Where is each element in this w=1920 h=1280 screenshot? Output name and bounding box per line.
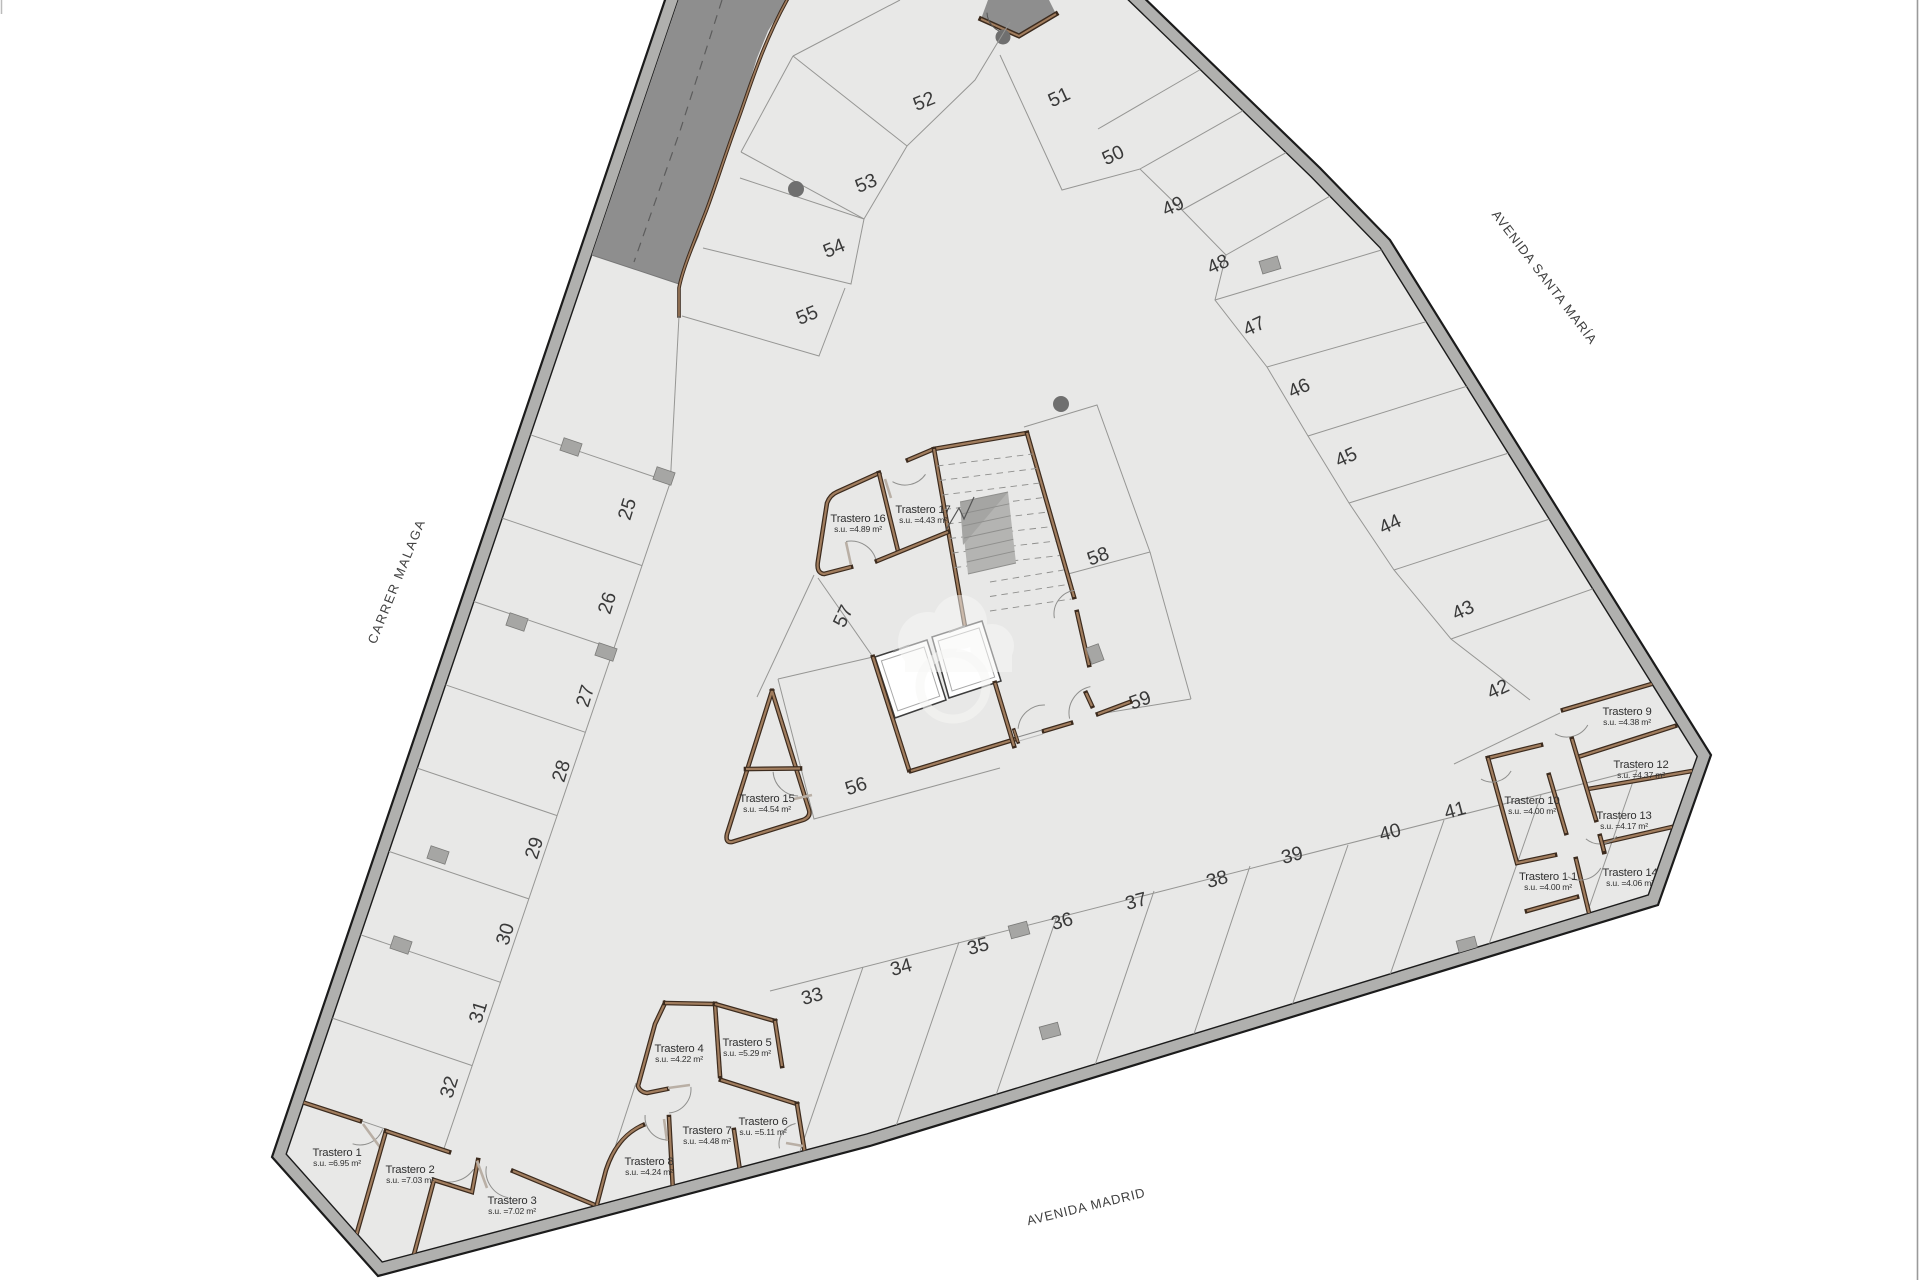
svg-text:s.u. =4.22 m²: s.u. =4.22 m² [655, 1054, 703, 1064]
svg-text:s.u. =4.89 m²: s.u. =4.89 m² [834, 524, 882, 534]
svg-text:s.u. =4.54 m²: s.u. =4.54 m² [743, 804, 791, 814]
svg-text:s.u. =4.43 m²: s.u. =4.43 m² [899, 515, 947, 525]
svg-text:s.u. =4.00 m²: s.u. =4.00 m² [1508, 806, 1556, 816]
svg-text:s.u. =4.06 m²: s.u. =4.06 m² [1606, 878, 1654, 888]
svg-text:s.u. =7.02 m²: s.u. =7.02 m² [488, 1206, 536, 1216]
svg-text:s.u. =4.38 m²: s.u. =4.38 m² [1603, 717, 1651, 727]
svg-text:s.u. =4.48 m²: s.u. =4.48 m² [683, 1136, 731, 1146]
svg-text:s.u. =4.00 m²: s.u. =4.00 m² [1524, 882, 1572, 892]
svg-text:s.u. =6.95 m²: s.u. =6.95 m² [313, 1158, 361, 1168]
svg-text:s.u. =4.24 m²: s.u. =4.24 m² [625, 1167, 673, 1177]
svg-text:s.u. =7.03 m²: s.u. =7.03 m² [386, 1175, 434, 1185]
svg-text:s.u. =4.37 m²: s.u. =4.37 m² [1617, 770, 1665, 780]
svg-text:s.u. =5.29 m²: s.u. =5.29 m² [723, 1048, 771, 1058]
svg-text:s.u. =5.11 m²: s.u. =5.11 m² [739, 1127, 786, 1137]
svg-text:s.u. =4.17 m²: s.u. =4.17 m² [1600, 821, 1648, 831]
